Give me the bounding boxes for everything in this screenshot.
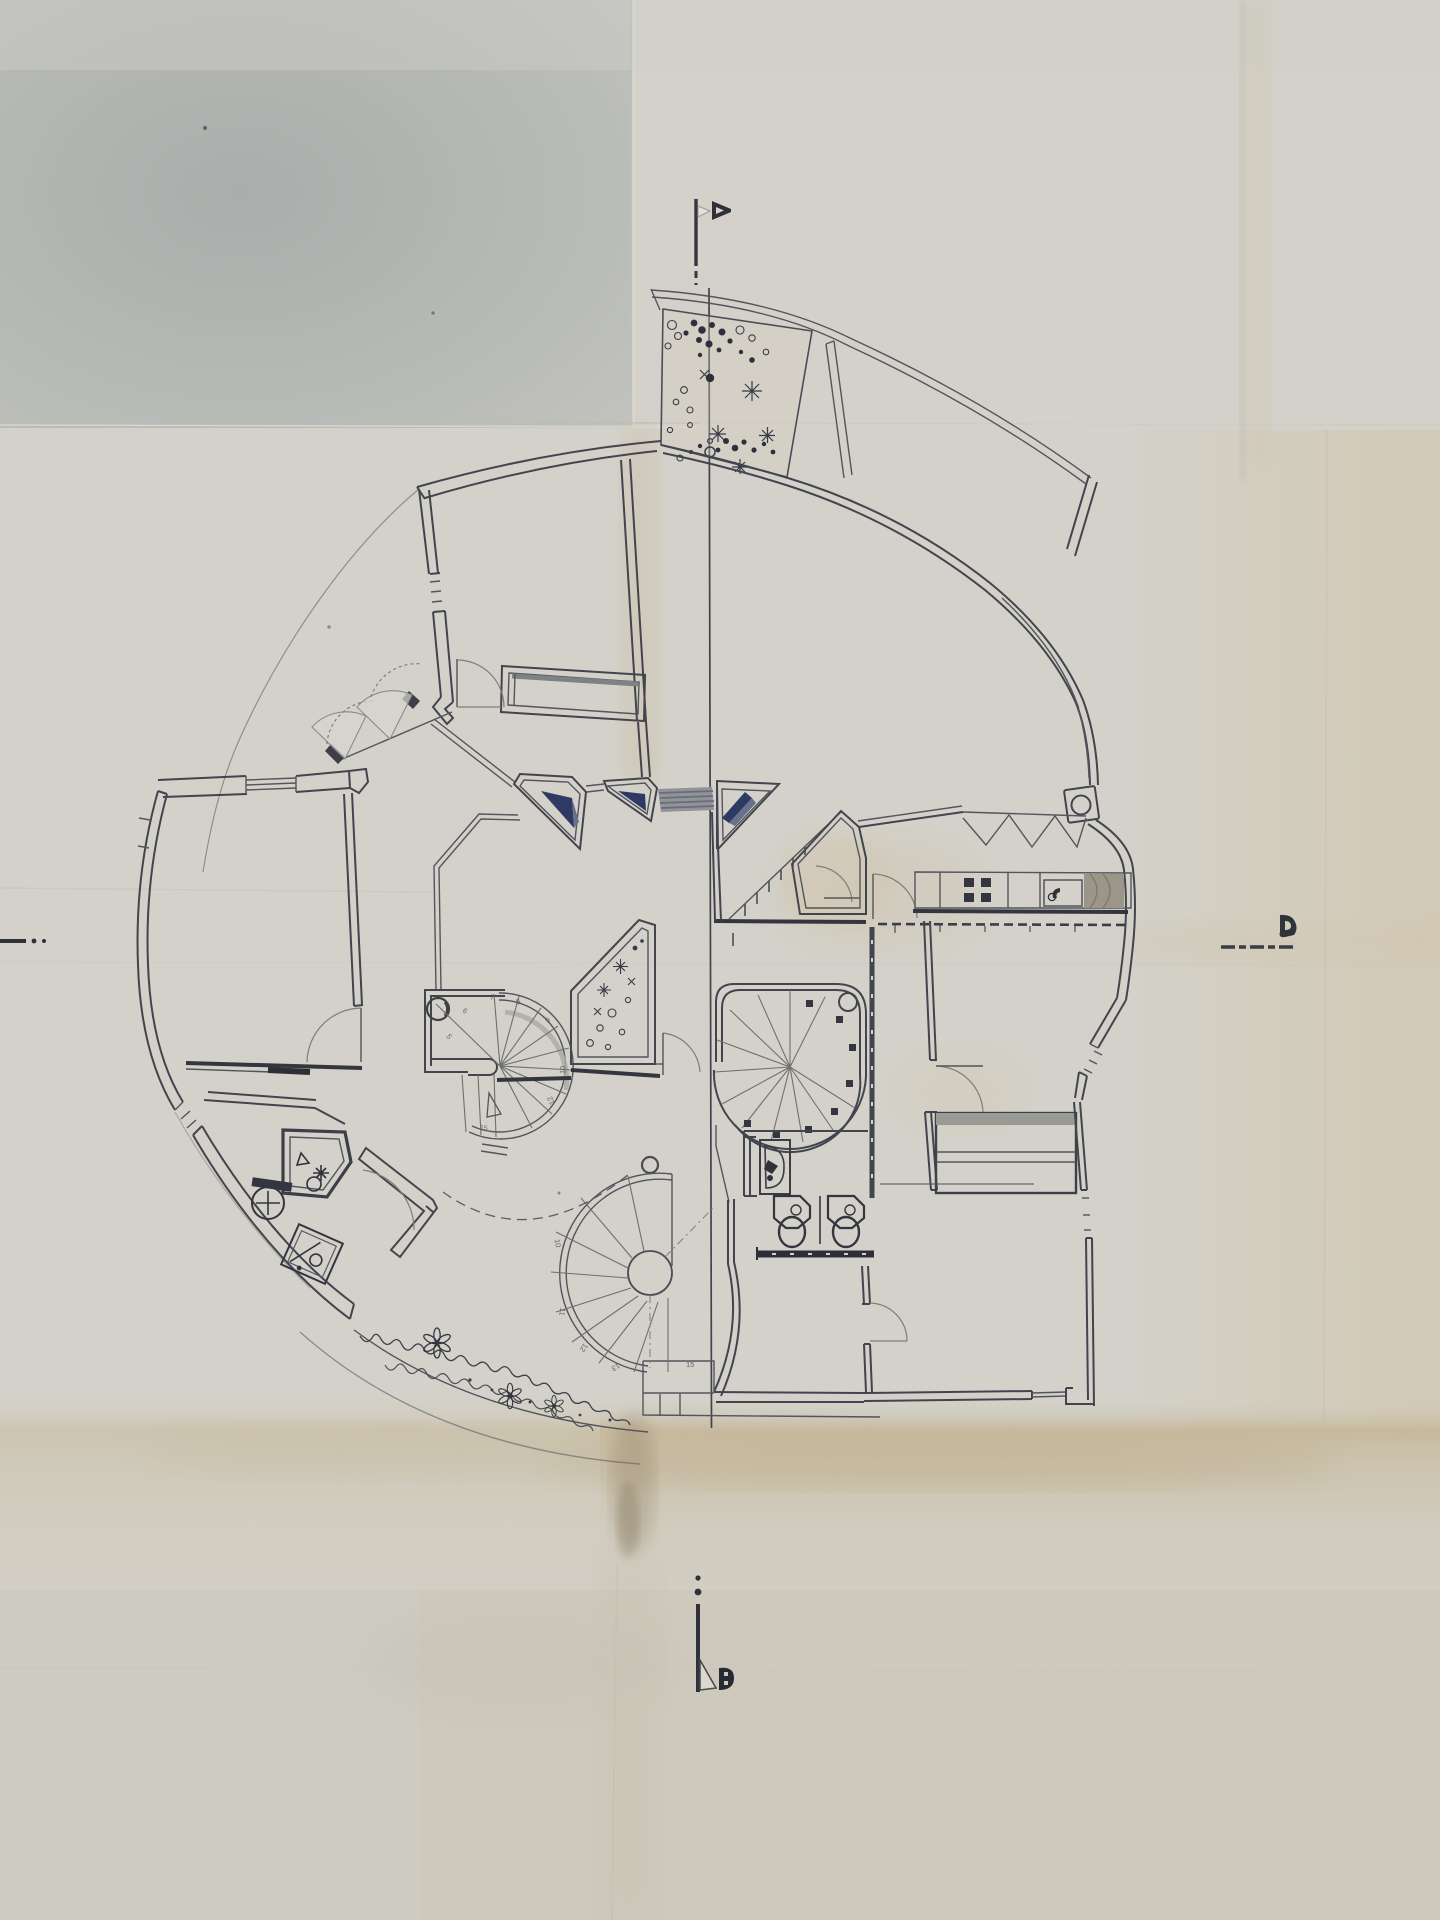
- svg-text:15: 15: [686, 1360, 694, 1369]
- svg-text:10: 10: [553, 1238, 563, 1248]
- svg-text:11: 11: [557, 1307, 567, 1316]
- svg-text:10: 10: [558, 1065, 568, 1074]
- svg-text:15: 15: [479, 1124, 488, 1132]
